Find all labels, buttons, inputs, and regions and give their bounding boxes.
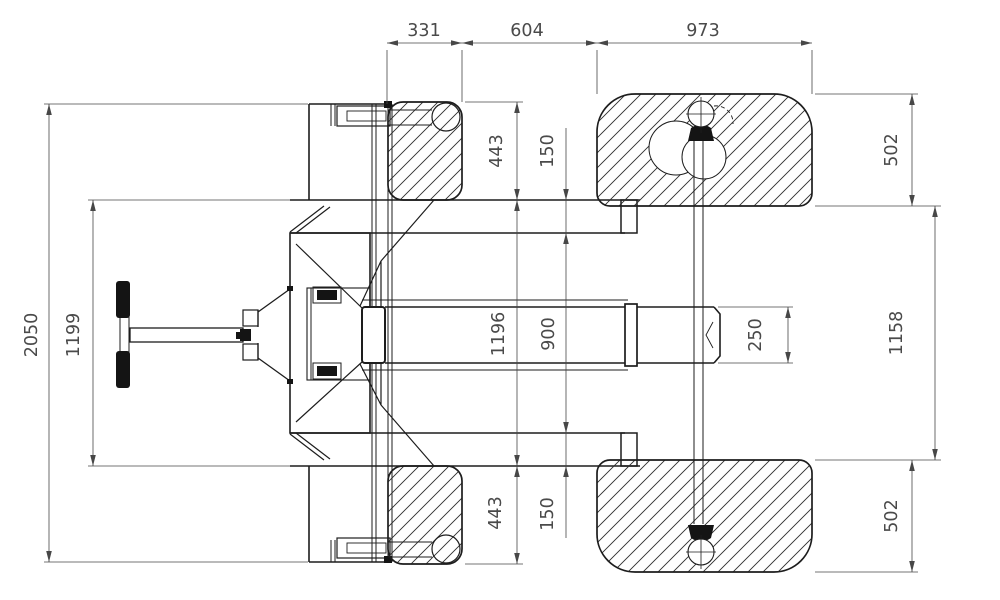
dim-label-wheel-502-bottom: 502 [882, 499, 902, 532]
technical-drawing-page: 3316049732050119944315011969004431502505… [0, 0, 1000, 600]
dim-label-width-973: 973 [686, 21, 719, 41]
handle-grip-bottom [116, 351, 130, 388]
dim-label-length-2050: 2050 [22, 313, 42, 358]
dim-label-gap-150-top: 150 [538, 134, 558, 167]
fork-heel-plate [362, 307, 385, 363]
chassis [290, 101, 640, 563]
fork-joint-cap [625, 304, 637, 366]
handle-shaft [130, 328, 243, 342]
dim-label-width-604: 604 [510, 21, 543, 41]
drive-wheel-top [388, 102, 462, 200]
dim-label-height-443-top: 443 [487, 134, 507, 167]
drive-wheel-bottom [388, 466, 462, 564]
dim-label-fork-250: 250 [746, 318, 766, 351]
dim-label-length-900: 900 [539, 317, 559, 350]
dim-label-track-1158: 1158 [887, 311, 907, 356]
tiller-handle [116, 281, 243, 388]
dim-label-length-1196: 1196 [489, 312, 509, 357]
load-wheel-bottom [597, 460, 812, 572]
load-wheel-top [597, 94, 812, 206]
fork-tip-chamfer [706, 322, 713, 348]
handle-grip-top [116, 281, 130, 318]
dim-label-length-1199: 1199 [64, 313, 84, 358]
steering-head [236, 286, 293, 384]
steering-pivot-bolt [240, 329, 251, 341]
dim-label-width-331: 331 [407, 21, 440, 41]
dim-label-height-443-bottom: 443 [486, 496, 506, 529]
dim-label-wheel-502-top: 502 [882, 133, 902, 166]
dim-label-gap-150-bottom: 150 [538, 497, 558, 530]
pallet-truck-plan-drawing: 3316049732050119944315011969004431502505… [0, 0, 1000, 600]
